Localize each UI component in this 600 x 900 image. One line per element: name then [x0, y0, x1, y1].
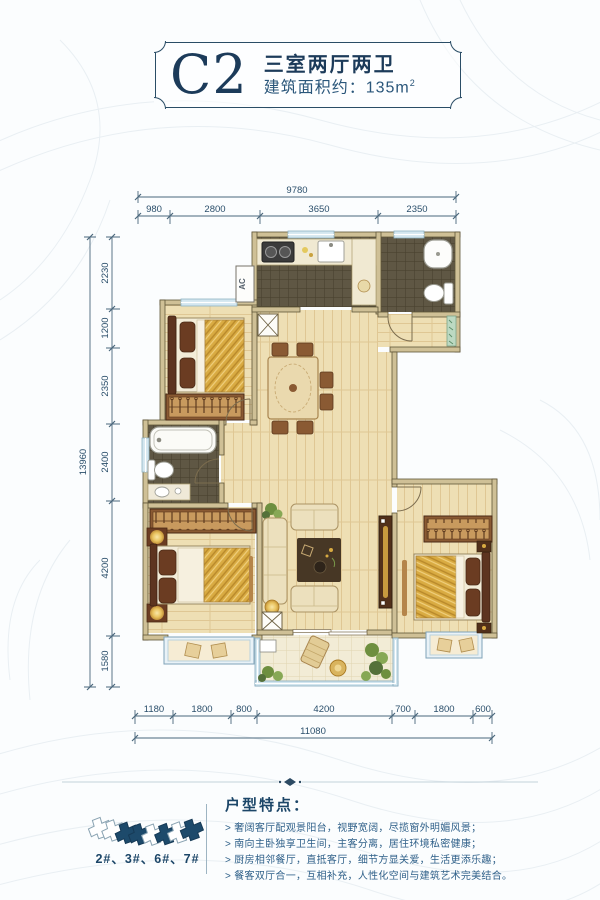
- window: [288, 231, 334, 238]
- feature-item: > 奢阔客厅配观景阳台，视野宽阔，尽揽窗外明媚风景；: [225, 821, 575, 837]
- lamp: [482, 544, 486, 548]
- dim-top-total: 9780: [286, 185, 307, 196]
- dim-left-total: 13960: [78, 449, 89, 475]
- dim-bottom-seg: 4200: [313, 704, 334, 715]
- bay-window-bedroom-3: [426, 632, 482, 658]
- footer-divider: [62, 778, 538, 786]
- floorplan-page: C2 三室两厅两卫 建筑面积约：135m2: [0, 0, 600, 900]
- dim-top-seg: 2800: [204, 204, 225, 215]
- cushion: [185, 643, 201, 659]
- buildings-label: 2#、3#、6#、7#: [70, 848, 225, 867]
- dim-top-seg: 3650: [308, 204, 329, 215]
- bed: [414, 552, 490, 622]
- window: [181, 299, 237, 306]
- dim-bottom-seg: 1800: [191, 704, 212, 715]
- cushion: [437, 638, 452, 652]
- dim-left-seg: 1200: [100, 317, 111, 338]
- kitchen-item: [302, 247, 308, 253]
- dim-bottom-total: 11080: [300, 726, 326, 737]
- cushion: [211, 643, 227, 658]
- kitchen-sink: [318, 241, 344, 262]
- dim-left-seg: 1580: [100, 650, 111, 671]
- bed-bench: [249, 556, 253, 602]
- corridor-floor: [221, 423, 257, 503]
- balcony-sliding-door: [293, 630, 367, 636]
- ac-platform: AC: [236, 266, 254, 302]
- tv-cabinet: [379, 516, 392, 608]
- dresser: [402, 560, 407, 616]
- ac-label: AC: [238, 278, 247, 290]
- entry-hall-floor: [378, 314, 455, 347]
- kitchen-bowl: [358, 280, 370, 292]
- bedroom-2-furniture: [166, 316, 244, 420]
- features-title: 户型特点：: [225, 794, 575, 815]
- dim-left-seg: 2230: [100, 262, 111, 283]
- dim-left-seg: 2350: [100, 375, 111, 396]
- duct-shaft: [262, 612, 282, 630]
- wardrobe: [424, 516, 492, 542]
- lamp: [150, 530, 164, 544]
- dim-left-seg: 4200: [100, 557, 111, 578]
- divider-ornament: [284, 778, 296, 786]
- ac-outdoor-unit: [260, 640, 276, 652]
- bed: [168, 316, 244, 394]
- lamp: [150, 606, 164, 620]
- side-table-top: [335, 665, 342, 672]
- floor-plan: AC 9780 980 2800 3650: [0, 0, 600, 900]
- vanity-sink: [148, 484, 190, 500]
- stove: [262, 242, 294, 262]
- entry-hall-fixtures: [447, 316, 456, 346]
- cushion: [459, 638, 474, 652]
- dim-bottom-seg: 600: [475, 704, 491, 715]
- feature-item: > 厨房相邻餐厅，直抵客厅，细节方显关爱，生活更添乐趣；: [225, 853, 575, 869]
- rug-coffee-table: [297, 538, 341, 582]
- dining-centerpiece: [289, 384, 297, 392]
- dim-bottom-seg: 1180: [144, 704, 164, 715]
- bed: [150, 544, 250, 606]
- dim-bottom-seg: 700: [395, 704, 411, 715]
- dim-left-seg: 2400: [100, 451, 111, 472]
- entry-cabinet: [447, 316, 456, 346]
- dim-bottom-seg: 800: [236, 704, 252, 715]
- duct-shaft: [258, 314, 278, 336]
- kitchen-item: [309, 253, 313, 257]
- features-block: 户型特点： > 奢阔客厅配观景阳台，视野宽阔，尽揽窗外明媚风景； > 南向主卧独…: [225, 794, 575, 885]
- feature-item: > 南向主卧独享卫生间，主客分离，居住环境私密健康；: [225, 837, 575, 853]
- bathtub: [150, 427, 216, 453]
- dim-bottom-seg: 1800: [433, 704, 454, 715]
- dim-top-seg: 980: [146, 204, 162, 215]
- features-list: > 奢阔客厅配观景阳台，视野宽阔，尽揽窗外明媚风景； > 南向主卧独享卫生间，主…: [225, 821, 575, 885]
- window: [394, 231, 424, 238]
- feature-item: > 餐客双厅合一，互相补充，人性化空间与建筑艺术完美结合。: [225, 869, 575, 885]
- shower-drain: [436, 252, 440, 256]
- dim-top-seg: 2350: [406, 204, 427, 215]
- toilet: [148, 460, 174, 480]
- site-plan-buildings: [87, 805, 204, 854]
- bay-window-master: [164, 637, 254, 664]
- footer-vertical-divider: [206, 804, 207, 874]
- footer: 2#、3#、6#、7# 户型特点： > 奢阔客厅配观景阳台，视野宽阔，尽揽窗外明…: [0, 770, 600, 900]
- lamp: [482, 626, 486, 630]
- kitchen-counter-side: [352, 239, 376, 305]
